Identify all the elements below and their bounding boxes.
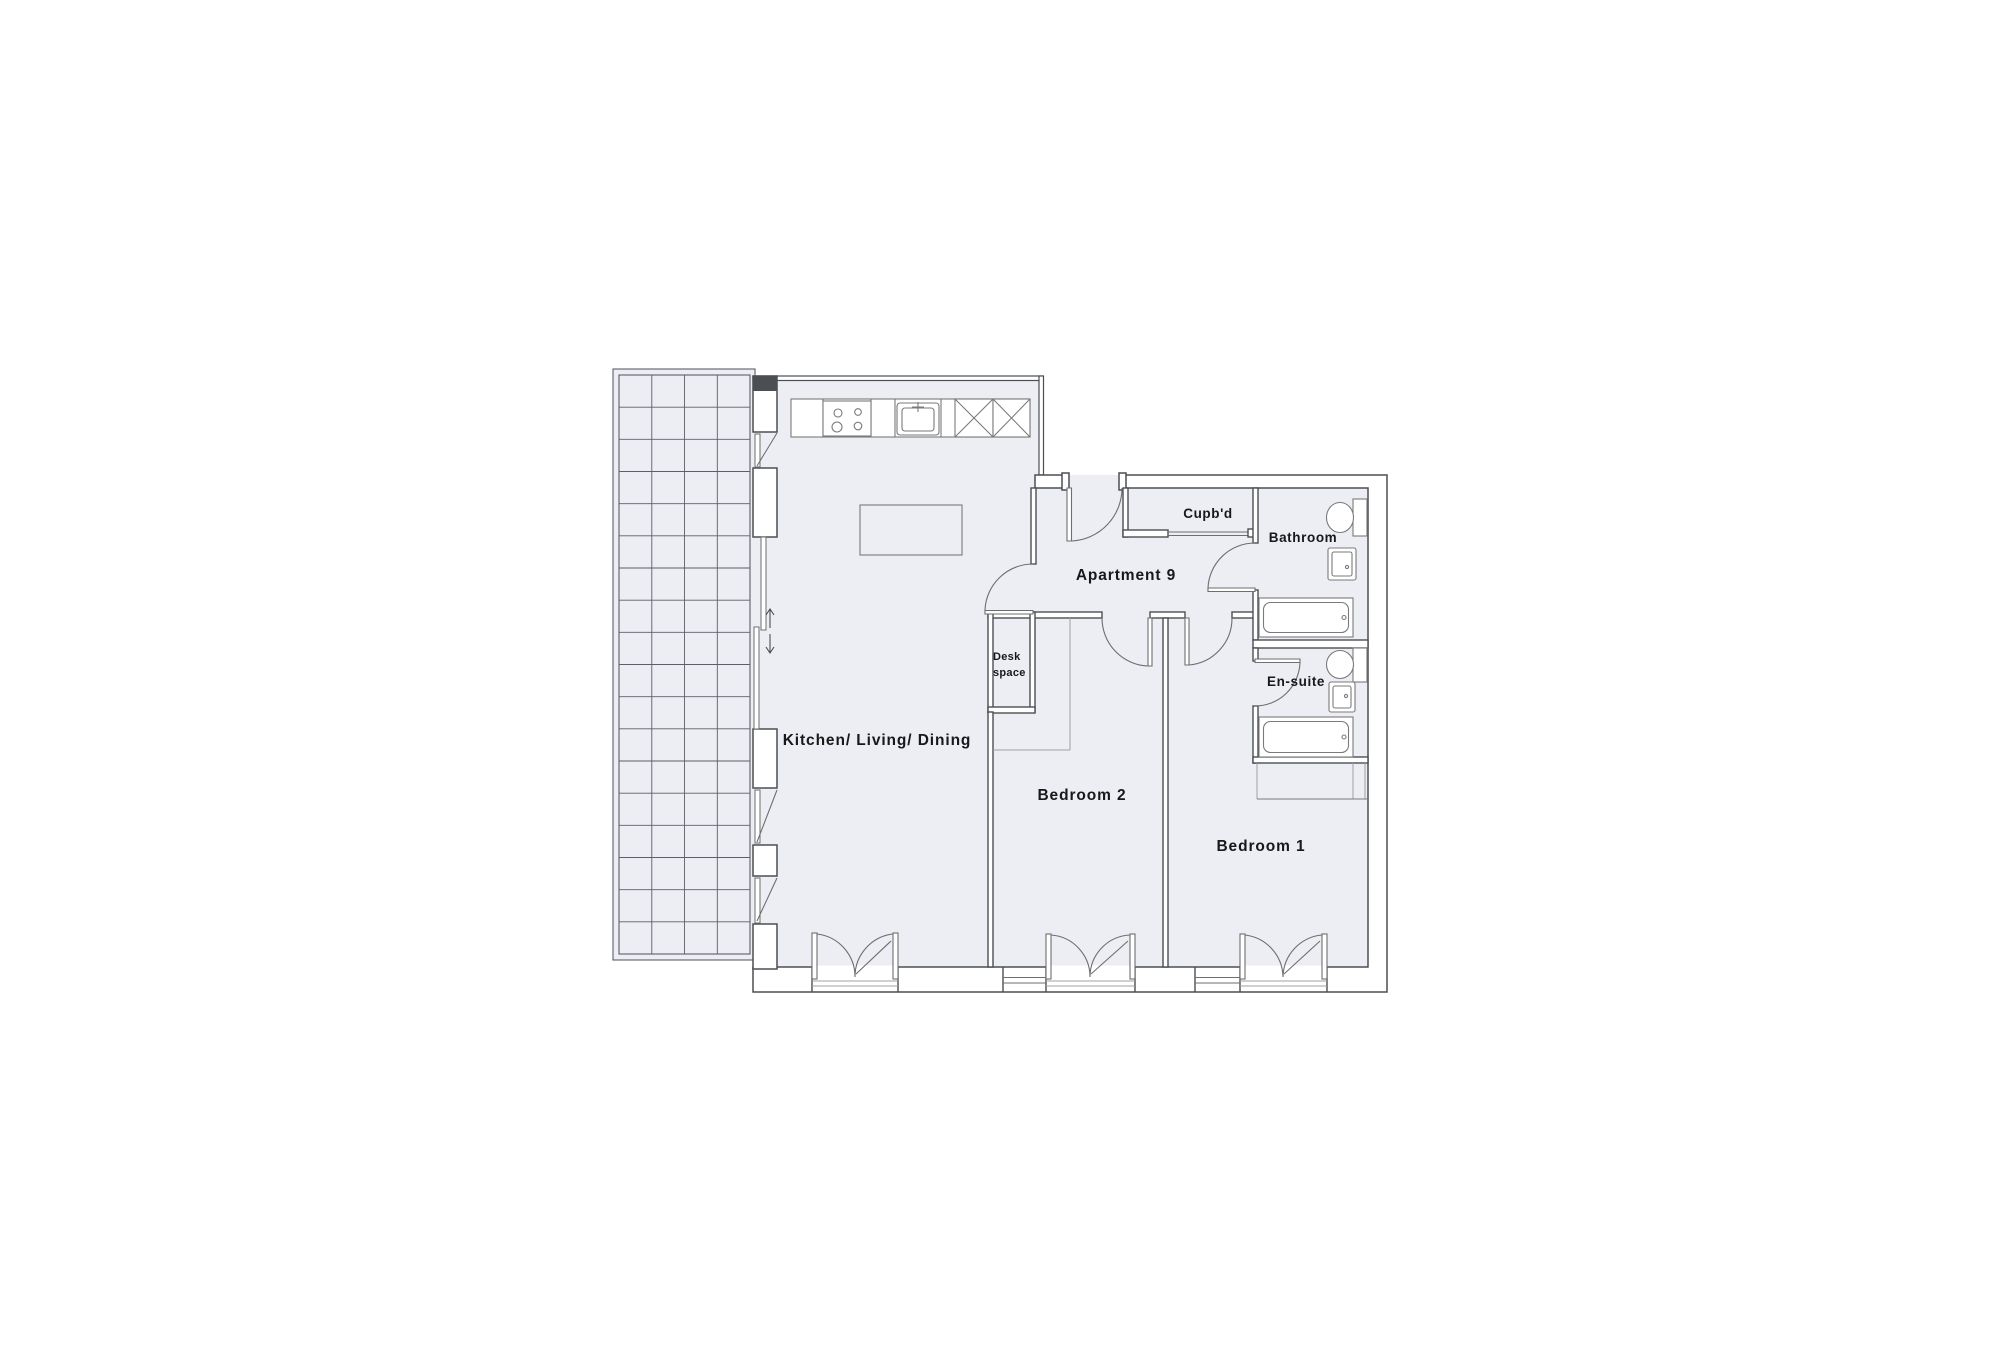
ensuite-bathtub-icon bbox=[1259, 717, 1353, 757]
label-apartment-9: Apartment 9 bbox=[1076, 567, 1176, 584]
living-east-upper-wall bbox=[1039, 376, 1044, 475]
floor-plan-drawing: Kitchen/ Living/ Dining Bedroom 2 Bedroo… bbox=[0, 0, 2000, 1359]
west-pier-2 bbox=[753, 468, 777, 537]
bathroom-west-wall-lower bbox=[1253, 590, 1258, 640]
ensuite-west-wall-lower bbox=[1253, 706, 1258, 763]
hob-icon bbox=[823, 401, 871, 436]
label-kitchen-living-dining: Kitchen/ Living/ Dining bbox=[783, 732, 972, 749]
tall-units-icon bbox=[955, 399, 1030, 437]
floor-plan-page: Kitchen/ Living/ Dining Bedroom 2 Bedroo… bbox=[0, 0, 2000, 1359]
label-desk-space-line1: Desk bbox=[993, 651, 1021, 663]
bedroom-divider-wall bbox=[1163, 618, 1168, 967]
cupboard-south-wall bbox=[1123, 530, 1168, 537]
ensuite-south-wall bbox=[1253, 757, 1368, 763]
label-bedroom-1: Bedroom 1 bbox=[1216, 838, 1305, 855]
sliding-window-pane-1 bbox=[761, 537, 766, 630]
label-cupboard: Cupb'd bbox=[1183, 506, 1233, 521]
sliding-window-pane-2 bbox=[754, 627, 759, 729]
label-bedroom-2: Bedroom 2 bbox=[1037, 787, 1126, 804]
bathroom-ensuite-divider bbox=[1253, 640, 1368, 648]
desk-nook-south-wall bbox=[988, 707, 1035, 713]
desk-nook-east-wall bbox=[1030, 612, 1035, 712]
bathroom-west-wall-upper bbox=[1253, 488, 1258, 543]
label-ensuite: En-suite bbox=[1267, 674, 1325, 689]
west-pier-3 bbox=[753, 729, 777, 788]
west-wall-corner-block bbox=[753, 376, 777, 391]
living-hall-wall bbox=[1031, 488, 1036, 564]
kitchen-north-wall bbox=[753, 376, 1043, 381]
bathroom-bathtub-icon bbox=[1259, 598, 1353, 637]
sink-icon bbox=[897, 402, 939, 435]
west-pier-4 bbox=[753, 845, 777, 876]
label-desk-space-line2: space bbox=[993, 667, 1026, 679]
kitchen-counter bbox=[791, 399, 1030, 437]
west-corner-pier bbox=[753, 924, 777, 969]
label-bathroom: Bathroom bbox=[1269, 530, 1338, 545]
hall-south-wall-b bbox=[1150, 612, 1185, 618]
living-door-opening bbox=[812, 966, 898, 970]
bathroom-basin-icon bbox=[1328, 548, 1356, 580]
terrace bbox=[613, 369, 755, 960]
bedroom2-west-wall bbox=[988, 712, 993, 967]
ensuite-basin-icon bbox=[1329, 682, 1355, 712]
